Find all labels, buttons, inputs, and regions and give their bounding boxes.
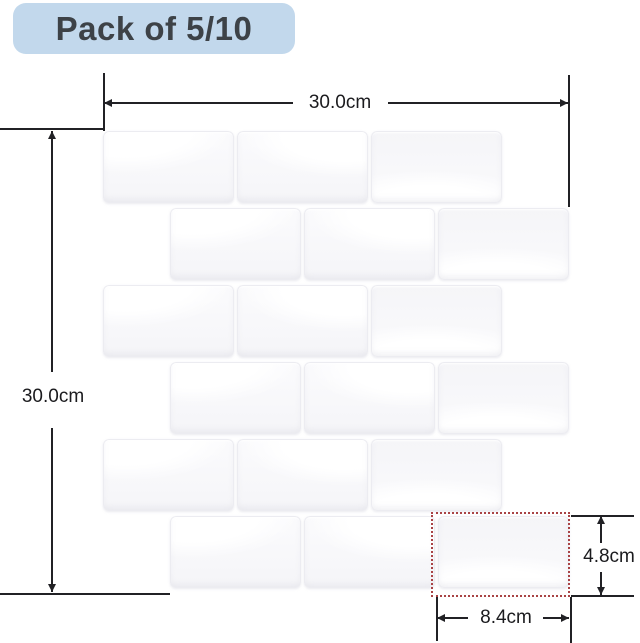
tile — [237, 131, 368, 203]
tile-height-label: 4.8cm — [580, 546, 638, 568]
tile — [170, 362, 301, 434]
arrow-left-icon — [104, 99, 112, 107]
tile — [438, 362, 569, 434]
tile — [103, 285, 234, 357]
tile — [237, 439, 368, 511]
tile-width-label: 8.4cm — [477, 607, 535, 629]
tile — [170, 208, 301, 280]
dimension-line — [388, 102, 568, 104]
tile — [103, 131, 234, 203]
extension-line — [571, 595, 634, 597]
arrow-down-icon — [597, 587, 605, 595]
tile — [371, 285, 502, 357]
tile — [237, 285, 368, 357]
arrow-left-icon — [437, 614, 445, 622]
dimension-line — [51, 428, 53, 592]
dimension-line — [104, 102, 293, 104]
tile — [304, 208, 435, 280]
tile — [304, 516, 435, 588]
sheet-width-label: 30.0cm — [306, 92, 374, 114]
tile — [371, 131, 502, 203]
tile — [438, 208, 569, 280]
extension-line — [0, 593, 170, 595]
arrow-down-icon — [48, 584, 56, 592]
product-dimension-diagram: Pack of 5/10 30.0cm 30.0cm 4.8cm — [0, 0, 640, 643]
tile — [304, 362, 435, 434]
extension-line — [0, 128, 104, 130]
dimension-line — [51, 131, 53, 372]
sheet-height-label: 30.0cm — [19, 386, 87, 408]
pack-size-badge: Pack of 5/10 — [13, 3, 295, 54]
extension-line — [570, 597, 572, 643]
arrow-up-icon — [597, 516, 605, 524]
extension-line — [568, 75, 570, 207]
highlighted-tile-outline — [431, 512, 570, 597]
tile — [371, 439, 502, 511]
arrow-up-icon — [48, 131, 56, 139]
tile — [103, 439, 234, 511]
tile — [170, 516, 301, 588]
arrow-right-icon — [560, 99, 568, 107]
arrow-right-icon — [561, 614, 569, 622]
